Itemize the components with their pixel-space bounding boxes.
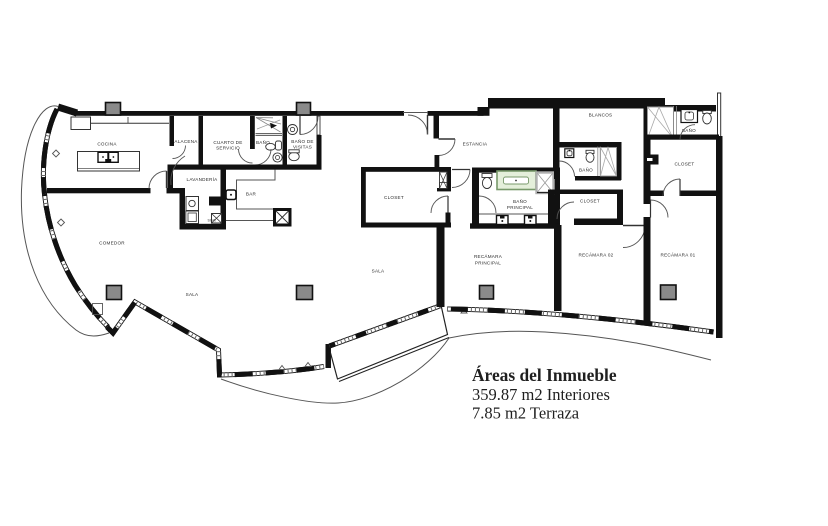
svg-text:COCINA: COCINA xyxy=(97,142,117,147)
svg-text:CLOSET: CLOSET xyxy=(580,199,600,204)
svg-text:RECÁMARA 01: RECÁMARA 01 xyxy=(661,252,696,258)
svg-text:SALA: SALA xyxy=(372,269,385,274)
svg-text:CLOSET: CLOSET xyxy=(384,195,404,200)
svg-text:BLANCOS: BLANCOS xyxy=(589,113,613,118)
svg-text:7.85 m2 Terraza: 7.85 m2 Terraza xyxy=(472,404,580,423)
svg-text:SALA: SALA xyxy=(186,292,199,297)
svg-text:Áreas del Inmueble: Áreas del Inmueble xyxy=(472,365,617,385)
svg-text:ALACENA: ALACENA xyxy=(174,139,198,144)
svg-text:BAÑO DE: BAÑO DE xyxy=(291,138,313,144)
svg-text:359.87 m2 Interiores: 359.87 m2 Interiores xyxy=(472,385,610,404)
svg-text:BAÑO: BAÑO xyxy=(513,198,527,204)
svg-text:VISITAS: VISITAS xyxy=(293,145,312,150)
svg-text:RECÁMARA 02: RECÁMARA 02 xyxy=(579,252,614,258)
svg-text:COMEDOR: COMEDOR xyxy=(99,241,125,246)
svg-text:CLOSET: CLOSET xyxy=(675,162,695,167)
svg-text:SINK: SINK xyxy=(208,219,217,223)
svg-text:BAÑO: BAÑO xyxy=(579,167,593,173)
svg-text:CUARTO DE: CUARTO DE xyxy=(213,140,242,145)
svg-text:RECÁMARA: RECÁMARA xyxy=(474,253,503,259)
svg-text:BAR: BAR xyxy=(246,192,257,197)
svg-text:PRINCIPAL: PRINCIPAL xyxy=(507,205,533,210)
svg-text:LAVANDERÍA: LAVANDERÍA xyxy=(187,176,219,182)
svg-text:ESTANCIA: ESTANCIA xyxy=(463,142,488,147)
svg-text:PRINCIPAL: PRINCIPAL xyxy=(475,261,501,266)
svg-text:SERVICIO: SERVICIO xyxy=(216,146,240,151)
